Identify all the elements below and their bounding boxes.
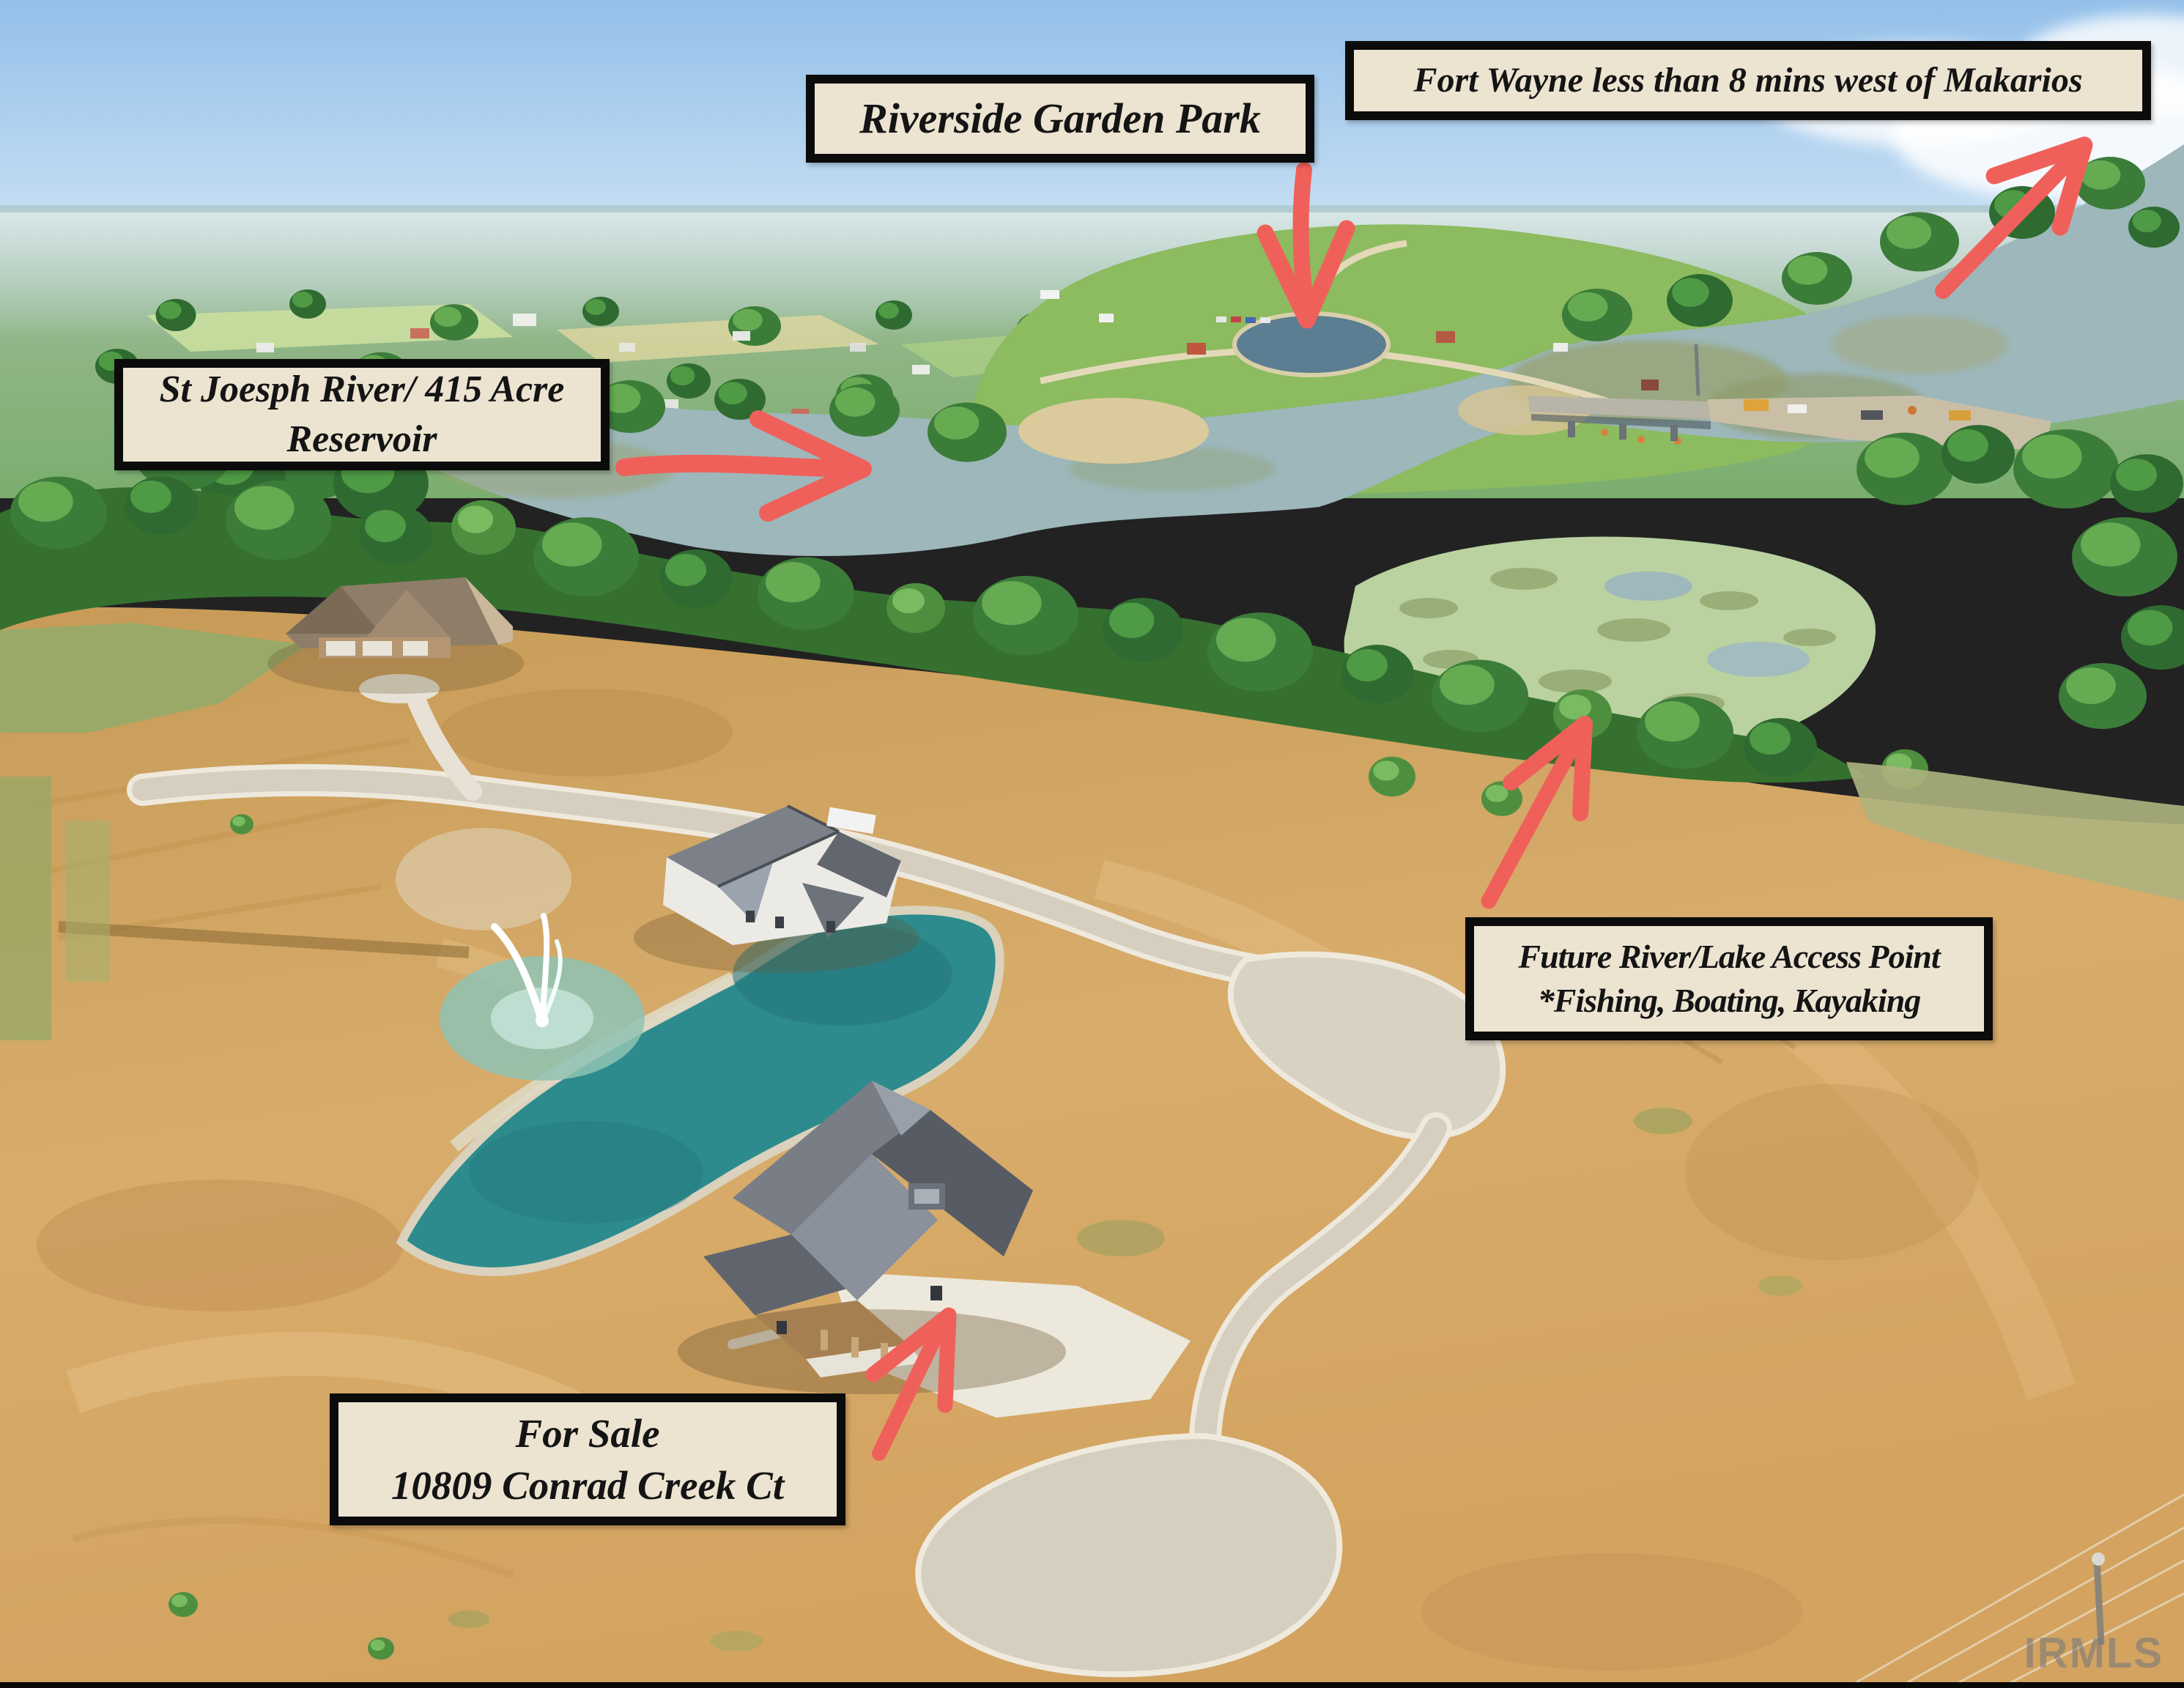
label-text-line1: For Sale — [515, 1407, 659, 1460]
scene-art — [0, 0, 2184, 1688]
photo-bottom-edge — [0, 1682, 2184, 1688]
aerial-photo: Riverside Garden Park Fort Wayne less th… — [0, 0, 2184, 1688]
label-text-line2: 10809 Conrad Creek Ct — [391, 1459, 784, 1512]
label-text-line2: Reservoir — [286, 415, 437, 464]
label-riverside-garden-park: Riverside Garden Park — [806, 75, 1314, 163]
label-text-line2: *Fishing, Boating, Kayaking — [1538, 979, 1921, 1023]
label-fort-wayne: Fort Wayne less than 8 mins west of Maka… — [1345, 41, 2151, 120]
label-for-sale: For Sale 10809 Conrad Creek Ct — [330, 1393, 845, 1525]
label-text-line1: St Joesph River/ 415 Acre — [160, 365, 565, 415]
label-text: Riverside Garden Park — [859, 91, 1261, 146]
label-text-line1: Future River/Lake Access Point — [1518, 935, 1939, 979]
label-st-joseph-river: St Joesph River/ 415 Acre Reservoir — [114, 359, 610, 470]
irmls-watermark: IRMLS — [2024, 1629, 2163, 1678]
label-future-access-point: Future River/Lake Access Point *Fishing,… — [1465, 917, 1993, 1040]
label-text: Fort Wayne less than 8 mins west of Maka… — [1413, 58, 2082, 103]
